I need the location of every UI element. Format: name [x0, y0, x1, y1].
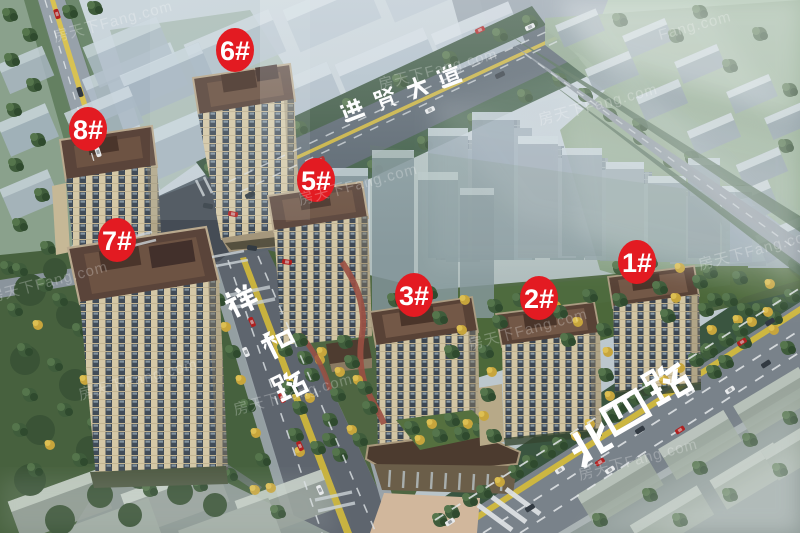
- svg-text:7#: 7#: [102, 226, 132, 256]
- svg-text:3#: 3#: [399, 281, 429, 311]
- svg-text:2#: 2#: [524, 284, 554, 314]
- svg-text:6#: 6#: [220, 36, 250, 66]
- svg-text:8#: 8#: [73, 115, 103, 145]
- svg-text:1#: 1#: [622, 248, 652, 278]
